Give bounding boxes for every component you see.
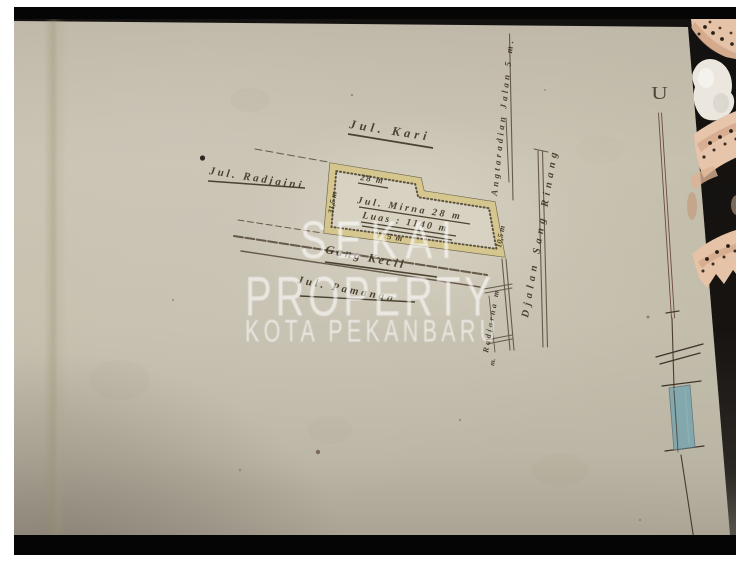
svg-text:Jul. Radjaini: Jul. Radjaini (208, 165, 305, 192)
svg-text:Djalan Sang Rinang: Djalan Sang Rinang (520, 147, 561, 319)
svg-text:m.: m. (488, 358, 497, 367)
svg-text:U: U (651, 84, 668, 103)
svg-text:Jul. Kari: Jul. Kari (348, 117, 432, 144)
